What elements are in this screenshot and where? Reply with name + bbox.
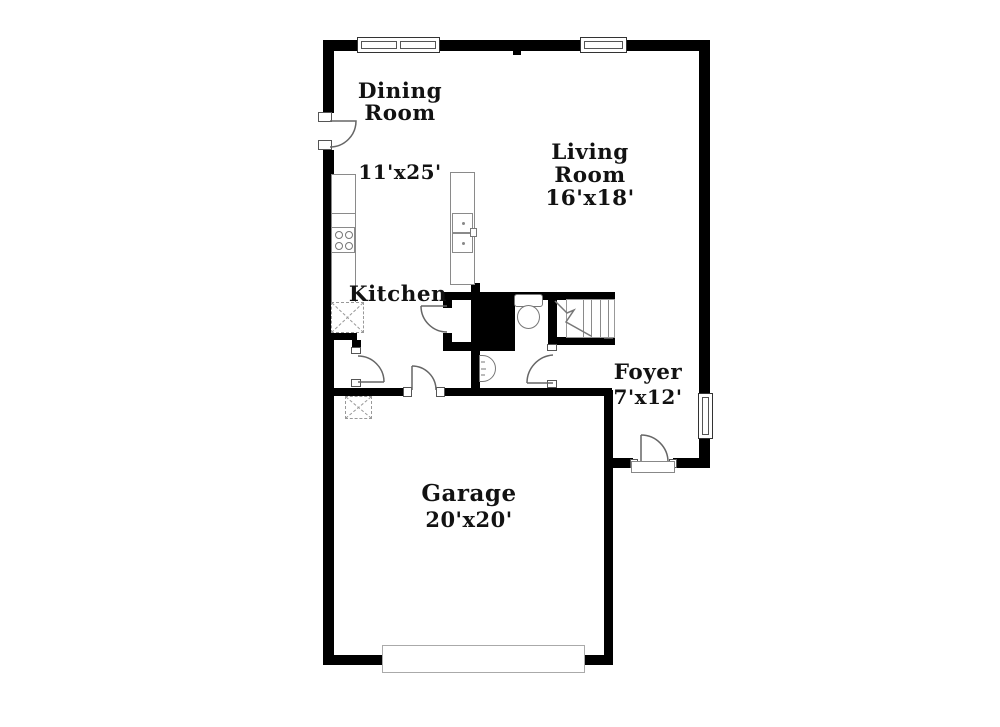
garage-dims: 20'x20' bbox=[407, 507, 531, 532]
front-door-sill bbox=[631, 461, 675, 473]
stove-icon bbox=[331, 227, 355, 253]
stove-burner bbox=[335, 231, 343, 239]
door-swing-icon bbox=[412, 366, 436, 390]
closet-top-wall bbox=[323, 332, 357, 340]
hall-bottom-wall-left bbox=[323, 388, 410, 396]
dining-door-jamb-top bbox=[318, 112, 332, 122]
room-name-line: Living bbox=[551, 140, 629, 165]
fixture-line-overlay bbox=[0, 0, 1000, 727]
door-swing-icon bbox=[421, 306, 447, 332]
stove-burner bbox=[335, 242, 343, 250]
foyer-dims: 7'x12' bbox=[586, 385, 710, 409]
stair-tread bbox=[583, 300, 584, 337]
powder-door-jamb-top bbox=[547, 344, 557, 351]
room-dims-line: 16'x18' bbox=[545, 186, 634, 211]
closet-door-jamb-bottom bbox=[351, 379, 361, 387]
garage-label: Garage bbox=[407, 480, 531, 507]
garage-right-wall bbox=[604, 390, 613, 665]
garage-door-jamb-right bbox=[436, 387, 445, 397]
dining-door-jamb-bottom bbox=[318, 140, 332, 150]
room-name-line: Room bbox=[364, 101, 435, 126]
window-pane bbox=[400, 41, 436, 49]
garage-door-icon bbox=[382, 645, 585, 673]
living-room-label: Living Room 16'x18' bbox=[528, 141, 652, 210]
window-pane bbox=[584, 41, 623, 49]
kitchen-label: Kitchen bbox=[336, 282, 460, 307]
living-window-icon bbox=[580, 37, 627, 53]
door-swing-icon bbox=[358, 356, 384, 382]
stair-tread bbox=[600, 300, 601, 337]
toilet-bowl-icon bbox=[517, 305, 540, 329]
stove-burner bbox=[345, 231, 353, 239]
stove-burner bbox=[345, 242, 353, 250]
exterior-wall-left-upper bbox=[323, 40, 334, 113]
powder-door-jamb-bottom bbox=[547, 380, 557, 388]
garage-door-jamb-left bbox=[403, 387, 412, 397]
exterior-wall-right-upper bbox=[699, 40, 710, 394]
stair-tread bbox=[591, 300, 592, 337]
wall-nub bbox=[513, 50, 521, 55]
counter-divider bbox=[332, 213, 355, 214]
closet-door-jamb-top bbox=[351, 347, 361, 354]
sink-faucet-icon bbox=[470, 228, 477, 237]
stair-tread bbox=[608, 300, 609, 337]
chase-solid-block bbox=[479, 292, 515, 351]
door-swing-icon bbox=[641, 435, 668, 462]
dining-room-label: Dining Room bbox=[338, 81, 462, 125]
powder-sink-icon bbox=[479, 355, 496, 382]
window-pane bbox=[361, 41, 397, 49]
foyer-front-wall-right bbox=[673, 458, 710, 468]
pantry-icon bbox=[345, 396, 372, 419]
sink-drain bbox=[462, 242, 465, 245]
dining-window-icon bbox=[357, 37, 440, 53]
door-swing-icon bbox=[527, 355, 553, 383]
floor-plan: Dining Room 11'x25' Living Room 16'x18' … bbox=[0, 0, 1000, 727]
room-name-line: Room bbox=[554, 163, 625, 188]
dining-room-dims: 11'x25' bbox=[338, 160, 462, 184]
sink-drain bbox=[462, 222, 465, 225]
foyer-label: Foyer bbox=[586, 360, 710, 385]
